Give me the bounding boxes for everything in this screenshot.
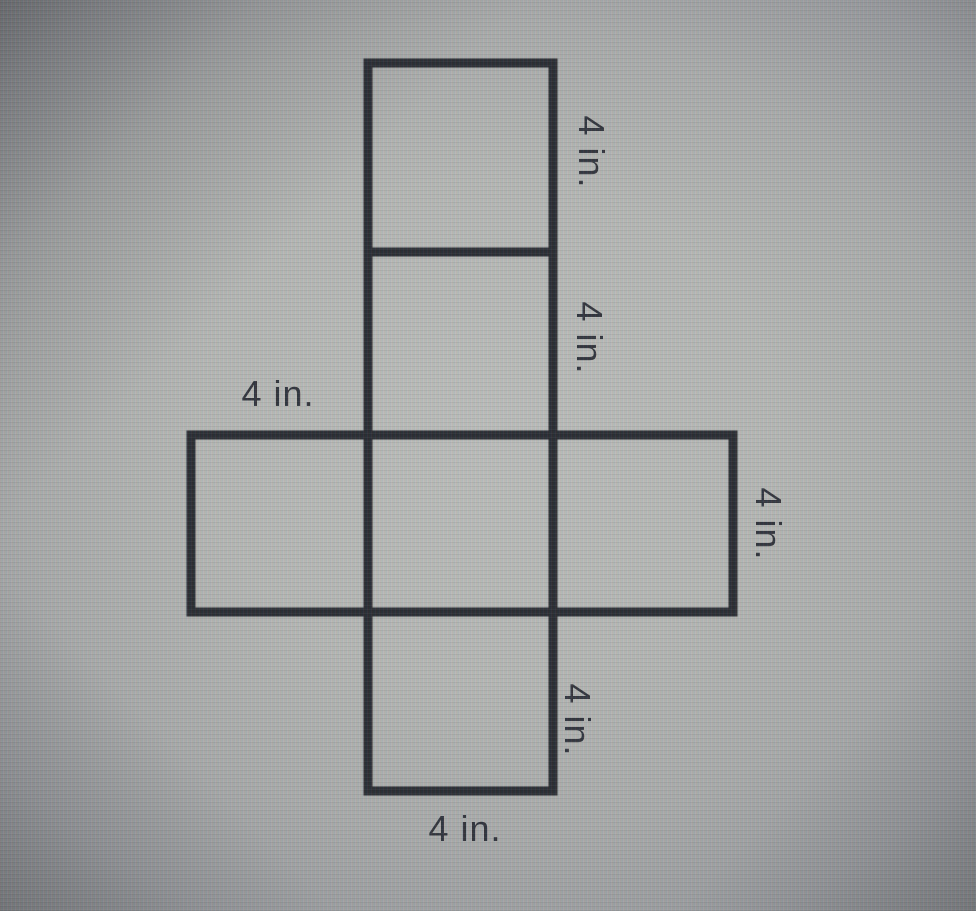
dimension-label-right-square-right: 4 in. [747, 487, 789, 560]
dimension-label-left-square-top: 4 in. [241, 373, 314, 415]
net-square-second [368, 252, 553, 435]
dimension-label-bottom-square-bottom: 4 in. [428, 808, 501, 850]
dimension-label-bottom-square-right: 4 in. [556, 683, 598, 756]
photographed-screen: 4 in. 4 in. 4 in. 4 in. 4 in. 4 in. [0, 0, 976, 911]
dimension-label-top-square-right: 4 in. [570, 115, 612, 188]
net-square-mid-left [191, 435, 368, 612]
net-square-mid-right [553, 435, 733, 612]
dimension-label-second-square-right: 4 in. [568, 301, 610, 374]
net-square-mid-center [368, 435, 553, 612]
net-square-top [368, 63, 553, 252]
cube-net-diagram [0, 0, 976, 911]
net-square-bottom [368, 612, 553, 791]
